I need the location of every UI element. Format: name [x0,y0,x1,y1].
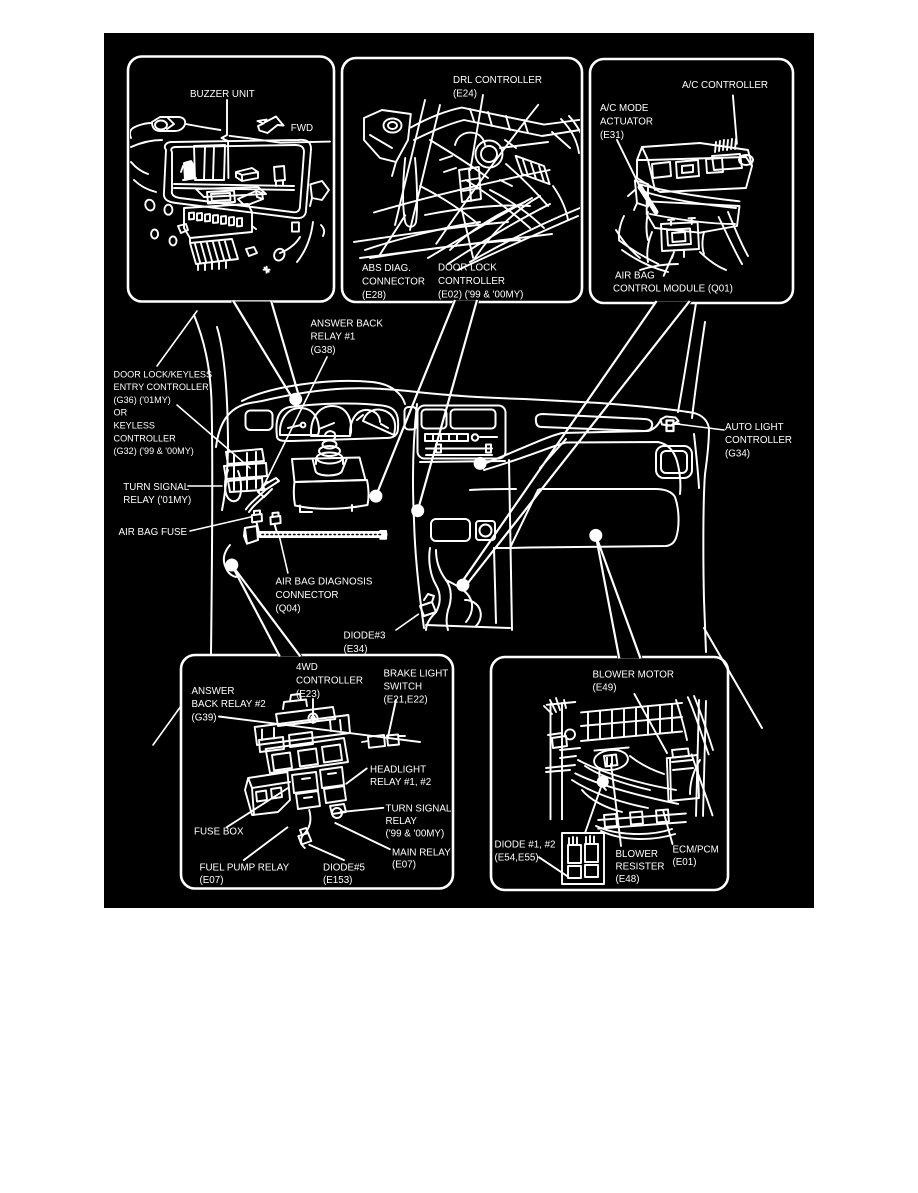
svg-text:RELAY ('01MY): RELAY ('01MY) [123,495,191,506]
svg-text:AIR BAG FUSE: AIR BAG FUSE [119,527,188,538]
svg-text:(E02) ('99 & '00MY): (E02) ('99 & '00MY) [438,290,523,301]
svg-text:AIR BAG: AIR BAG [615,271,655,282]
svg-text:DRL CONTROLLER: DRL CONTROLLER [453,75,542,86]
svg-text:HEADLIGHT: HEADLIGHT [370,765,426,776]
svg-text:CONTROLLER: CONTROLLER [725,435,792,446]
svg-text:A/C MODE: A/C MODE [600,103,649,114]
svg-text:(Q04): (Q04) [276,604,301,615]
svg-text:(E48): (E48) [616,874,640,885]
svg-text:BLOWER MOTOR: BLOWER MOTOR [593,670,674,681]
svg-text:('99 & '00MY): ('99 & '00MY) [386,829,445,840]
svg-text:TURN SIGNAL: TURN SIGNAL [386,804,452,815]
svg-text:(E49): (E49) [593,683,617,694]
svg-text:ENTRY CONTROLLER: ENTRY CONTROLLER [114,382,210,392]
svg-text:FWD: FWD [291,123,313,134]
svg-text:FUSE BOX: FUSE BOX [194,827,244,838]
svg-text:A/C CONTROLLER: A/C CONTROLLER [682,80,768,91]
svg-text:(G38): (G38) [311,345,336,356]
svg-text:ANSWER: ANSWER [192,686,235,697]
svg-text:RESISTER: RESISTER [616,862,665,873]
svg-text:(E01): (E01) [673,857,697,868]
svg-text:(E54,E55): (E54,E55) [495,853,539,864]
svg-text:BUZZER UNIT: BUZZER UNIT [190,89,255,100]
svg-text:ANSWER BACK: ANSWER BACK [311,319,384,330]
svg-text:(G32) ('99 & '00MY): (G32) ('99 & '00MY) [114,446,194,456]
svg-text:FUEL PUMP RELAY: FUEL PUMP RELAY [200,863,290,874]
svg-text:(G34): (G34) [725,449,750,460]
svg-text:RELAY #1, #2: RELAY #1, #2 [370,777,431,788]
svg-text:CONTROLLER: CONTROLLER [296,676,363,687]
svg-text:DOOR LOCK/KEYLESS: DOOR LOCK/KEYLESS [114,369,213,379]
svg-text:CONTROLLER: CONTROLLER [114,433,177,443]
svg-text:(E07): (E07) [392,860,416,871]
svg-text:RELAY: RELAY [386,816,418,827]
svg-text:(E21,E22): (E21,E22) [384,695,428,706]
svg-text:(E31): (E31) [600,130,624,141]
svg-text:KEYLESS: KEYLESS [114,421,155,431]
svg-text:ACTUATOR: ACTUATOR [600,117,653,128]
svg-text:BLOWER: BLOWER [616,849,658,860]
svg-text:DIODE#3: DIODE#3 [344,631,386,642]
svg-text:CONNECTOR: CONNECTOR [276,590,339,601]
svg-text:TURN SIGNAL: TURN SIGNAL [123,482,189,493]
svg-text:ABS DIAG.: ABS DIAG. [362,263,411,274]
svg-text:(G39): (G39) [192,713,217,724]
svg-text:(E153): (E153) [323,875,352,886]
svg-text:BRAKE LIGHT: BRAKE LIGHT [384,669,449,680]
svg-text:BACK RELAY #2: BACK RELAY #2 [192,699,266,710]
svg-text:DIODE#5: DIODE#5 [323,863,365,874]
svg-text:(E28): (E28) [362,290,386,301]
svg-text:DIODE #1, #2: DIODE #1, #2 [495,840,556,851]
svg-text:SWITCH: SWITCH [384,682,423,693]
svg-text:ECM/PCM: ECM/PCM [673,845,719,856]
svg-text:RELAY #1: RELAY #1 [311,332,356,343]
svg-text:DOOR LOCK: DOOR LOCK [438,263,497,274]
svg-text:MAIN RELAY: MAIN RELAY [392,848,451,859]
svg-text:(G36) ('01MY): (G36) ('01MY) [114,395,171,405]
svg-text:(E07): (E07) [200,875,224,886]
svg-text:AIR BAG DIAGNOSIS: AIR BAG DIAGNOSIS [276,577,373,588]
svg-text:4WD: 4WD [296,662,318,673]
svg-text:(E34): (E34) [344,644,368,655]
svg-text:OR: OR [114,408,128,418]
svg-text:AUTO LIGHT: AUTO LIGHT [725,422,784,433]
svg-text:CONTROLLER: CONTROLLER [438,276,505,287]
svg-text:CONTROL MODULE (Q01): CONTROL MODULE (Q01) [613,284,733,295]
svg-text:CONNECTOR: CONNECTOR [362,277,425,288]
svg-text:(E24): (E24) [453,89,477,100]
